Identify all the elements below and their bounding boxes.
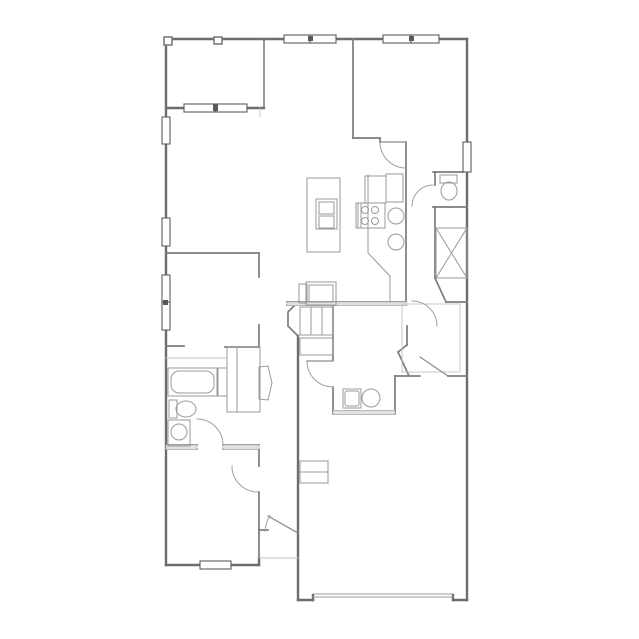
garage-fixtures-rect — [300, 472, 328, 483]
floor-plan-page — [0, 0, 639, 639]
kitchen-fixtures-circle — [362, 207, 369, 214]
powder-room-fixtures — [440, 175, 457, 200]
bathroom-fixtures-rect — [171, 371, 214, 393]
kitchen-fixtures-rect — [319, 202, 334, 214]
kitchen-fixtures-rect — [356, 203, 385, 228]
windows-rect — [184, 104, 215, 112]
powder-room-fixtures-ellipse — [441, 182, 457, 200]
window-mullions-rect — [163, 300, 168, 305]
kitchen-fixtures-circle — [388, 234, 404, 250]
hall-closet-fixtures — [227, 307, 333, 412]
interior-walls-line — [435, 278, 446, 302]
door-swing-arcs-arc — [380, 142, 406, 168]
wall-fill-bands-rect — [223, 445, 259, 450]
door-swing-arcs-arc — [412, 185, 433, 206]
windows-rect — [162, 117, 170, 144]
window-mullions-rect — [213, 104, 218, 111]
kitchen-fixtures-circle — [362, 218, 369, 225]
kitchen-fixtures-circle — [372, 218, 379, 225]
interior-walls-polyline — [288, 302, 298, 336]
door-swing-arcs-arc — [232, 466, 258, 492]
patio-walls — [164, 37, 264, 108]
windows-rect — [310, 35, 336, 43]
interior-walls — [166, 39, 467, 558]
kitchen-fixtures-rect — [319, 216, 334, 228]
floor-plan-drawing — [0, 0, 639, 639]
windows-rect — [216, 104, 247, 112]
bathroom-fixtures-ellipse — [176, 401, 196, 417]
kitchen-fixtures-circle — [372, 207, 379, 214]
door-swing-arcs — [197, 142, 437, 531]
window-mullions — [163, 36, 414, 305]
interior-walls-line — [398, 345, 407, 352]
floor-edge-lines — [166, 108, 460, 558]
wall-fill-bands — [166, 302, 407, 450]
windows-rect — [284, 35, 310, 43]
windows-rect — [162, 218, 170, 246]
patio-walls-rect — [214, 37, 222, 44]
door-swing-arcs-arc — [307, 361, 333, 387]
patio-walls-rect — [164, 37, 172, 45]
windows-rect — [162, 302, 170, 330]
kitchen-fixtures-line — [368, 253, 390, 276]
door-leaves — [268, 142, 448, 533]
door-leaves-line — [268, 516, 298, 533]
exterior-walls — [166, 39, 467, 600]
bathroom-fixtures — [168, 368, 227, 446]
kitchen-fixtures-rect — [386, 174, 403, 202]
hall-closet-fixtures-rect — [227, 347, 260, 412]
floor-edge-lines-rect — [402, 304, 460, 372]
laundry-fixtures-circle — [362, 389, 380, 407]
door-swing-arcs-arc — [197, 419, 223, 445]
door-swing-arcs-arc — [412, 301, 437, 326]
windows-rect — [200, 561, 231, 569]
windows-rect — [463, 142, 471, 172]
windows-rect — [411, 35, 439, 43]
hall-closet-fixtures-polygon — [259, 366, 272, 400]
garage-fixtures — [300, 461, 453, 597]
door-leaves-line — [420, 357, 448, 376]
kitchen-fixtures — [299, 174, 404, 305]
laundry-fixtures-rect — [345, 391, 359, 406]
garage-fixtures-rect — [300, 461, 328, 472]
kitchen-fixtures-rect — [309, 285, 333, 302]
windows-rect — [162, 275, 170, 303]
laundry-fixtures — [343, 389, 380, 408]
window-mullions-rect — [409, 36, 414, 41]
kitchen-fixtures-rect — [307, 178, 340, 252]
wall-fill-bands-rect — [333, 411, 395, 415]
utility-closet — [436, 228, 467, 278]
door-swing-arcs-arc — [265, 516, 270, 532]
hall-closet-fixtures-rect — [300, 338, 333, 355]
window-mullions-rect — [308, 36, 313, 41]
bathroom-fixtures-circle — [171, 424, 187, 440]
kitchen-fixtures-circle — [388, 208, 404, 224]
hall-closet-fixtures-rect — [300, 307, 333, 335]
windows-rect — [383, 35, 411, 43]
